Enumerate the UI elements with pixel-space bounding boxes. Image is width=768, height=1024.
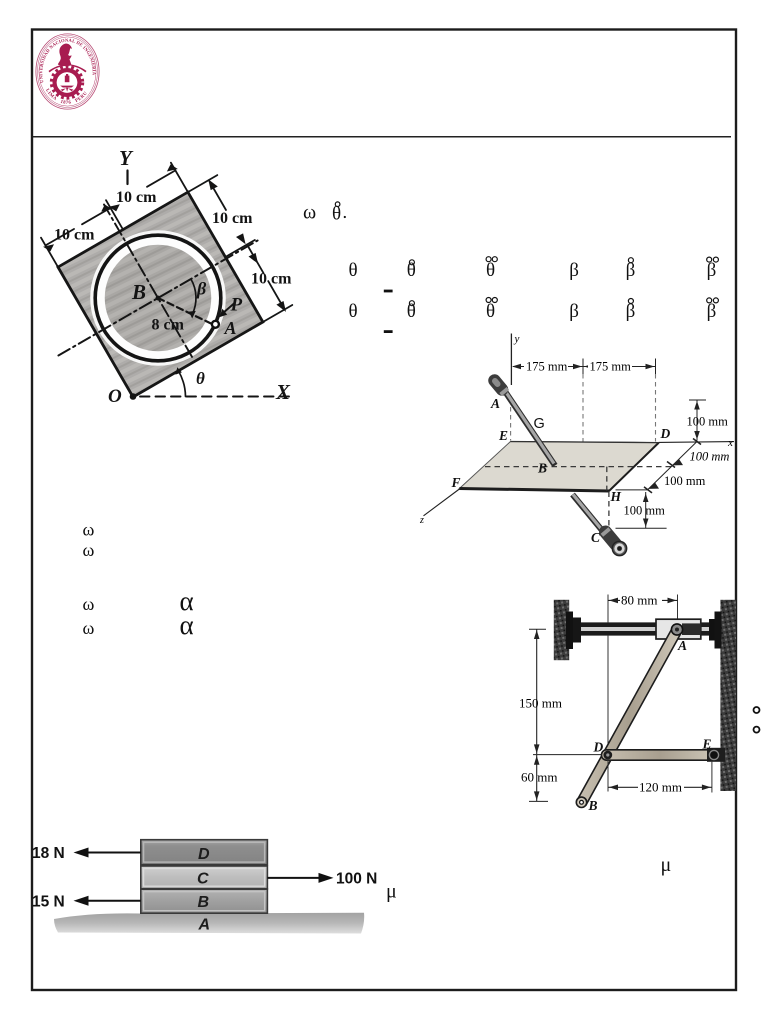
svg-text:A: A [490, 396, 500, 411]
svg-text:θ: θ [486, 260, 495, 281]
svg-text:10 cm: 10 cm [212, 210, 253, 227]
svg-text:ω: ω [83, 520, 95, 540]
svg-text:θ: θ [349, 301, 358, 322]
svg-text:P: P [230, 295, 243, 316]
svg-text:F: F [451, 475, 461, 490]
svg-text:β: β [707, 260, 717, 281]
svg-text:120 mm: 120 mm [639, 780, 682, 795]
svg-text:175 mm: 175 mm [590, 360, 632, 374]
svg-text:10 cm: 10 cm [116, 189, 157, 206]
svg-text:B: B [198, 894, 210, 911]
svg-text:B: B [537, 461, 547, 476]
svg-text:175 mm: 175 mm [526, 360, 568, 374]
svg-text:A: A [198, 917, 211, 934]
svg-text:A: A [677, 638, 687, 653]
svg-text:O: O [108, 386, 122, 407]
svg-text:B: B [588, 798, 598, 813]
svg-text:Y: Y [119, 146, 134, 170]
svg-text:β: β [569, 260, 579, 281]
svg-text:100 mm: 100 mm [624, 504, 666, 518]
svg-text:E: E [498, 428, 508, 443]
svg-text:H: H [610, 489, 622, 504]
svg-text:μ: μ [661, 854, 672, 876]
svg-text:y: y [514, 333, 520, 345]
svg-text:X: X [275, 380, 291, 404]
svg-text:60 mm: 60 mm [521, 770, 557, 785]
svg-text:10 cm: 10 cm [251, 271, 292, 288]
svg-text:100 mm: 100 mm [664, 474, 706, 488]
svg-text:ω: ω [83, 618, 95, 638]
svg-text:θ: θ [349, 260, 358, 281]
svg-text:18 N: 18 N [32, 845, 65, 862]
svg-text:8 cm: 8 cm [152, 317, 185, 334]
svg-text:10 cm: 10 cm [54, 227, 95, 244]
svg-text:θ: θ [196, 369, 205, 388]
svg-text:D: D [593, 740, 604, 755]
svg-text:150 mm: 150 mm [519, 696, 562, 711]
svg-text:z: z [419, 515, 424, 526]
svg-text:100 N: 100 N [336, 871, 377, 888]
svg-text:θ: θ [486, 301, 495, 322]
svg-text:D: D [198, 846, 210, 863]
svg-text:80 mm: 80 mm [621, 593, 657, 608]
svg-text:100 mm: 100 mm [687, 415, 729, 429]
svg-text:ω: ω [83, 594, 95, 614]
svg-text:μ: μ [386, 881, 397, 903]
svg-text:B: B [131, 280, 146, 304]
svg-text:x: x [727, 437, 733, 449]
svg-text:C: C [591, 530, 601, 545]
svg-text:15 N: 15 N [32, 894, 65, 911]
svg-text:ω: ω [83, 540, 95, 560]
svg-text:ω: ω [303, 202, 316, 224]
svg-text:D: D [660, 426, 671, 441]
svg-text:E: E [702, 737, 712, 752]
svg-text:C: C [197, 871, 209, 888]
svg-text:100 mm: 100 mm [690, 450, 730, 464]
svg-text:G: G [534, 416, 545, 432]
svg-text:β: β [569, 301, 579, 322]
svg-text:α: α [180, 610, 194, 640]
svg-text:A: A [224, 318, 237, 338]
svg-text:β: β [196, 279, 207, 299]
svg-text:β: β [707, 301, 717, 322]
